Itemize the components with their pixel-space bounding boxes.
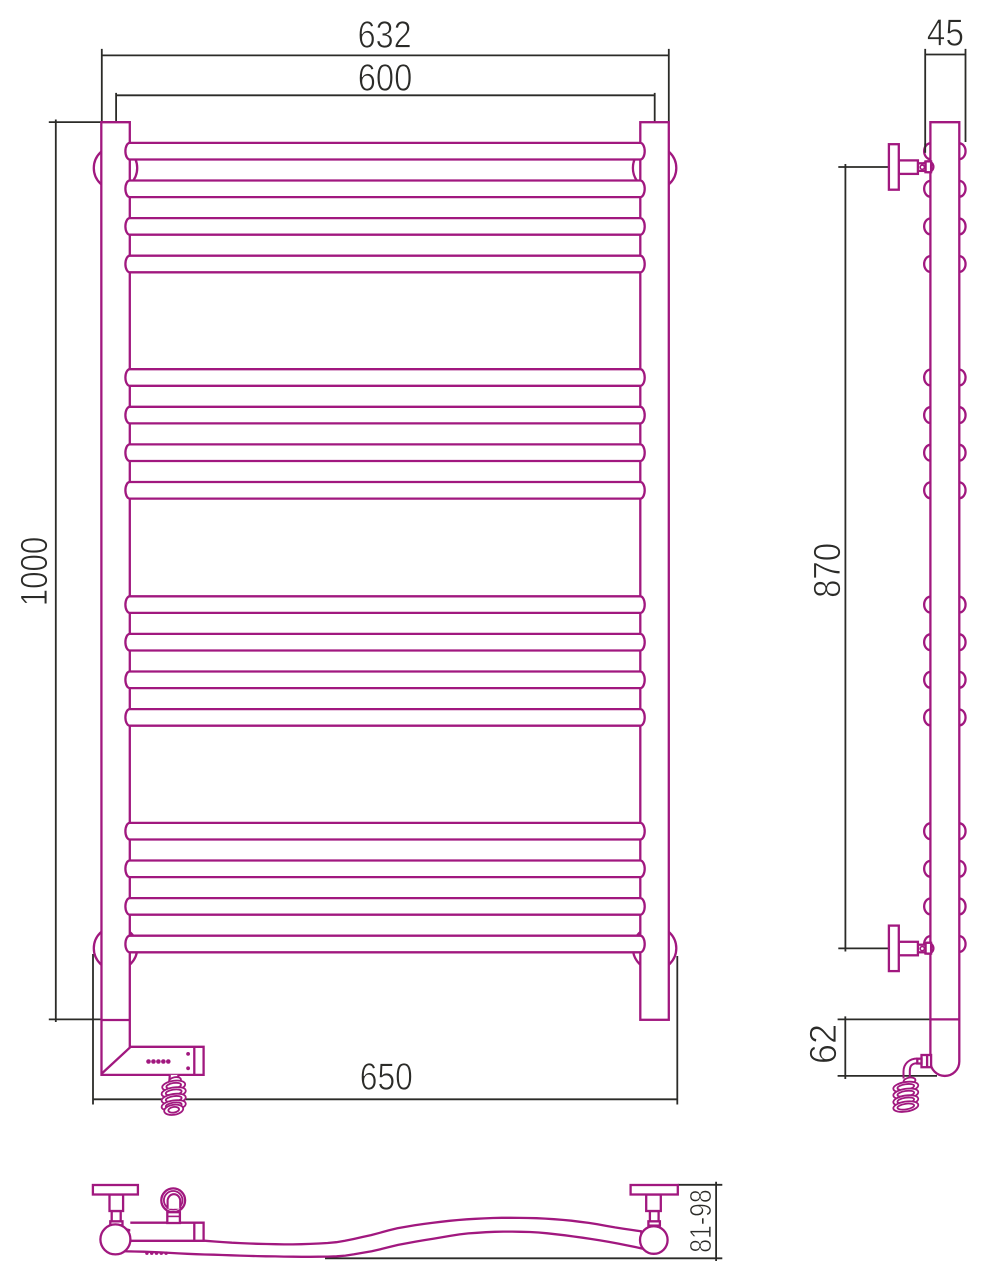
svg-text:81-98: 81-98 (684, 1189, 718, 1253)
svg-text:62: 62 (803, 1024, 845, 1064)
svg-text:45: 45 (927, 13, 964, 55)
svg-text:632: 632 (358, 14, 412, 56)
svg-text:600: 600 (358, 58, 413, 100)
svg-text:870: 870 (807, 543, 849, 598)
svg-text:1000: 1000 (14, 537, 56, 607)
svg-text:650: 650 (360, 1057, 413, 1099)
